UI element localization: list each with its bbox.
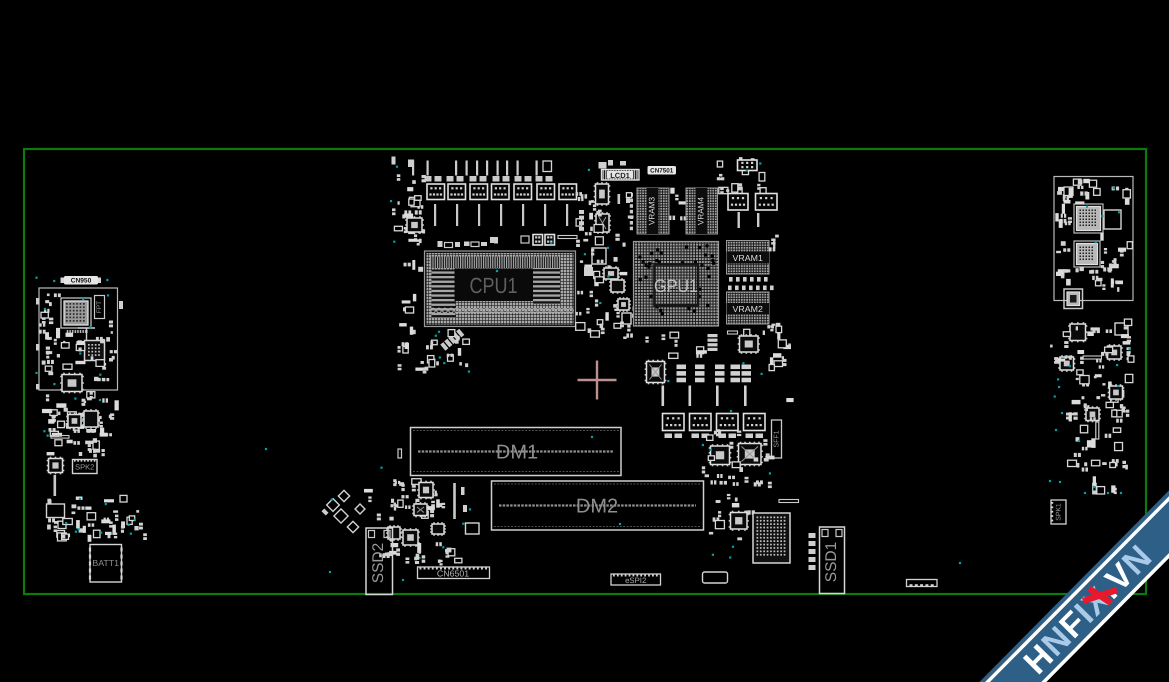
svg-text:CN950: CN950	[71, 278, 92, 285]
svg-text:VRAM4: VRAM4	[697, 196, 706, 225]
svg-text:VRAM3: VRAM3	[648, 196, 657, 225]
svg-text:SFF1: SFF1	[773, 430, 780, 447]
svg-text:BATT1: BATT1	[92, 558, 119, 568]
svg-text:DM1: DM1	[496, 442, 538, 464]
svg-text:CPU1: CPU1	[470, 273, 518, 298]
svg-text:CN7501: CN7501	[650, 168, 674, 175]
svg-text:LCD1: LCD1	[610, 171, 630, 180]
svg-text:SPK1: SPK1	[1055, 503, 1062, 521]
svg-text:VRAM1: VRAM1	[733, 253, 763, 263]
svg-text:GPU1: GPU1	[654, 276, 698, 296]
svg-text:SSD2: SSD2	[370, 543, 387, 584]
svg-text:DM2: DM2	[576, 496, 618, 518]
svg-text:FPT: FPT	[96, 301, 103, 313]
svg-text:eSPI2: eSPI2	[625, 576, 646, 585]
svg-text:SSD1: SSD1	[823, 542, 840, 583]
svg-text:CN6501: CN6501	[437, 569, 469, 579]
svg-text:SPK2: SPK2	[75, 463, 94, 472]
svg-text:VRAM2: VRAM2	[733, 304, 763, 314]
